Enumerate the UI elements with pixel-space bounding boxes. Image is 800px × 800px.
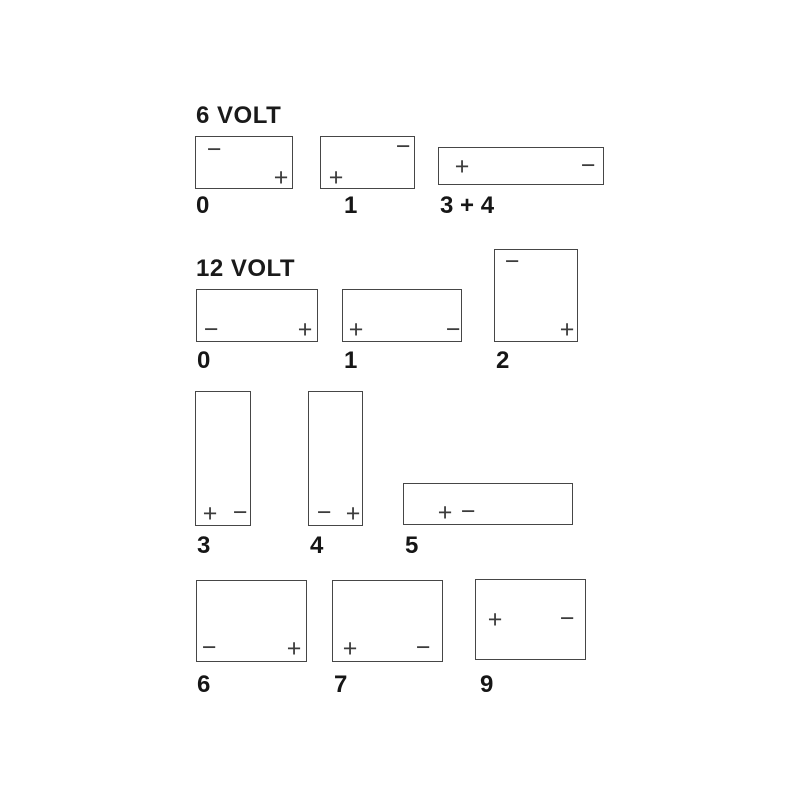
negative-terminal: − (204, 318, 219, 343)
battery-box-6v-3-4: + − (438, 147, 604, 185)
negative-terminal: − (396, 135, 411, 160)
negative-terminal: − (233, 501, 248, 526)
battery-box-12v-3: + − (195, 391, 251, 526)
positive-terminal: + (274, 166, 289, 191)
battery-label-6v-1: 1 (344, 194, 357, 218)
negative-terminal: − (317, 501, 332, 526)
positive-terminal: + (203, 502, 218, 527)
negative-terminal: − (446, 318, 461, 343)
positive-terminal: + (343, 637, 358, 662)
negative-terminal: − (416, 636, 431, 661)
section-title-12-volt: 12 VOLT (196, 257, 295, 281)
battery-terminal-layout-diagram: 6 VOLT − + 0 − + 1 + − 3 + 4 12 VOLT − +… (0, 0, 800, 800)
battery-box-12v-9: + − (475, 579, 586, 660)
battery-box-12v-7: + − (332, 580, 443, 662)
negative-terminal: − (207, 138, 222, 163)
positive-terminal: + (455, 155, 470, 180)
positive-terminal: + (438, 501, 453, 526)
battery-label-12v-4: 4 (310, 534, 323, 558)
battery-label-12v-7: 7 (334, 673, 347, 697)
positive-terminal: + (329, 166, 344, 191)
battery-label-12v-5: 5 (405, 534, 418, 558)
positive-terminal: + (560, 318, 575, 343)
positive-terminal: + (488, 608, 503, 633)
battery-box-6v-1: − + (320, 136, 415, 189)
positive-terminal: + (346, 502, 361, 527)
battery-label-12v-9: 9 (480, 673, 493, 697)
battery-box-12v-4: − + (308, 391, 363, 526)
battery-label-6v-3-4: 3 + 4 (440, 194, 494, 218)
negative-terminal: − (461, 500, 476, 525)
section-title-6-volt: 6 VOLT (196, 104, 281, 128)
positive-terminal: + (287, 637, 302, 662)
battery-label-12v-2: 2 (496, 349, 509, 373)
battery-box-12v-0: − + (196, 289, 318, 342)
negative-terminal: − (202, 636, 217, 661)
battery-box-12v-5: + − (403, 483, 573, 525)
battery-box-12v-2: − + (494, 249, 578, 342)
negative-terminal: − (560, 607, 575, 632)
battery-label-12v-6: 6 (197, 673, 210, 697)
positive-terminal: + (298, 318, 313, 343)
battery-label-6v-0: 0 (196, 194, 209, 218)
battery-label-12v-3: 3 (197, 534, 210, 558)
battery-box-12v-1: + − (342, 289, 462, 342)
battery-label-12v-0: 0 (197, 349, 210, 373)
battery-box-12v-6: − + (196, 580, 307, 662)
negative-terminal: − (581, 154, 596, 179)
battery-label-12v-1: 1 (344, 349, 357, 373)
battery-box-6v-0: − + (195, 136, 293, 189)
positive-terminal: + (349, 318, 364, 343)
negative-terminal: − (505, 250, 520, 275)
